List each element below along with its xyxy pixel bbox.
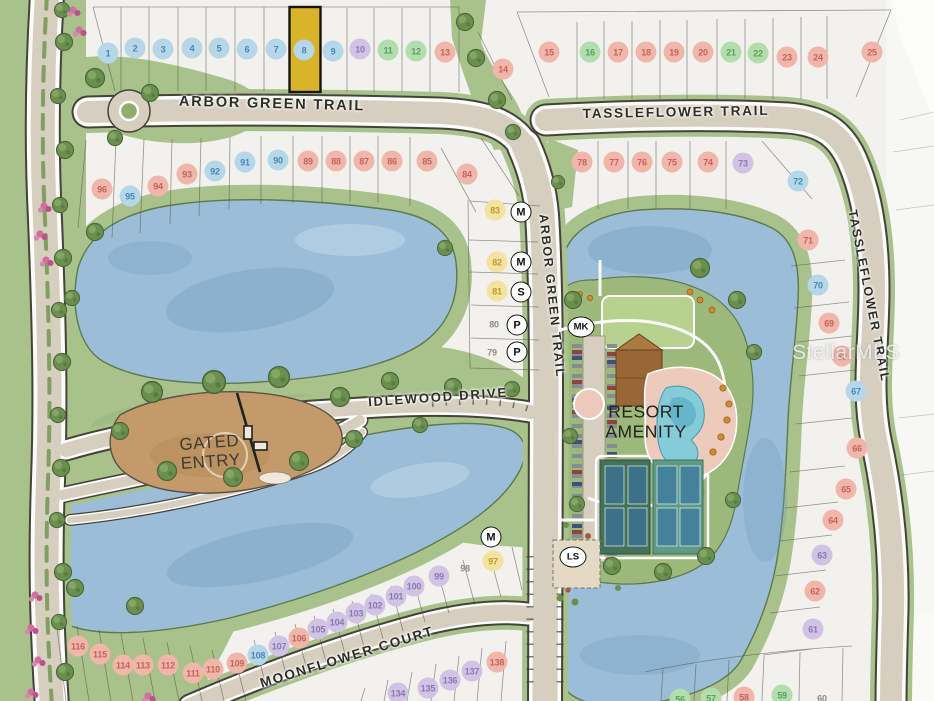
highlighted-lot (290, 7, 321, 92)
pickleball-courts (653, 460, 703, 554)
lift-station-pad (553, 540, 600, 588)
upper-left-pond (75, 200, 457, 384)
tennis-courts (600, 460, 650, 554)
drop-off-circle (574, 389, 604, 419)
site-plan-drawing (0, 0, 934, 701)
community-site-plan-map: 1234567891011121314151617181920212223242… (0, 0, 934, 701)
gate-house (244, 426, 252, 439)
